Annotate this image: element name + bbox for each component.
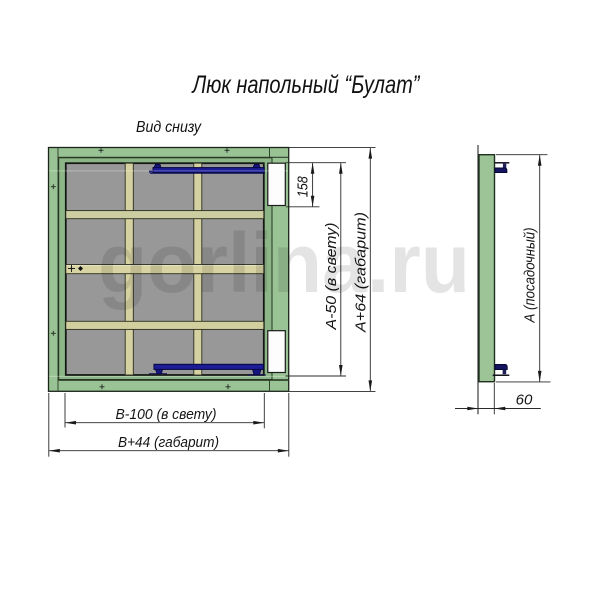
svg-text:Вид снизу: Вид снизу: [136, 119, 202, 136]
svg-text:60: 60: [516, 392, 533, 409]
svg-text:Люк напольный “Булат”: Люк напольный “Булат”: [191, 71, 421, 99]
svg-text:А (посадочный): А (посадочный): [522, 228, 539, 324]
svg-text:gorlina.ru: gorlina.ru: [98, 216, 470, 310]
svg-text:158: 158: [295, 176, 312, 198]
svg-text:В-100 (в свету): В-100 (в свету): [116, 406, 217, 423]
svg-text:В+44 (габарит): В+44 (габарит): [118, 434, 219, 451]
